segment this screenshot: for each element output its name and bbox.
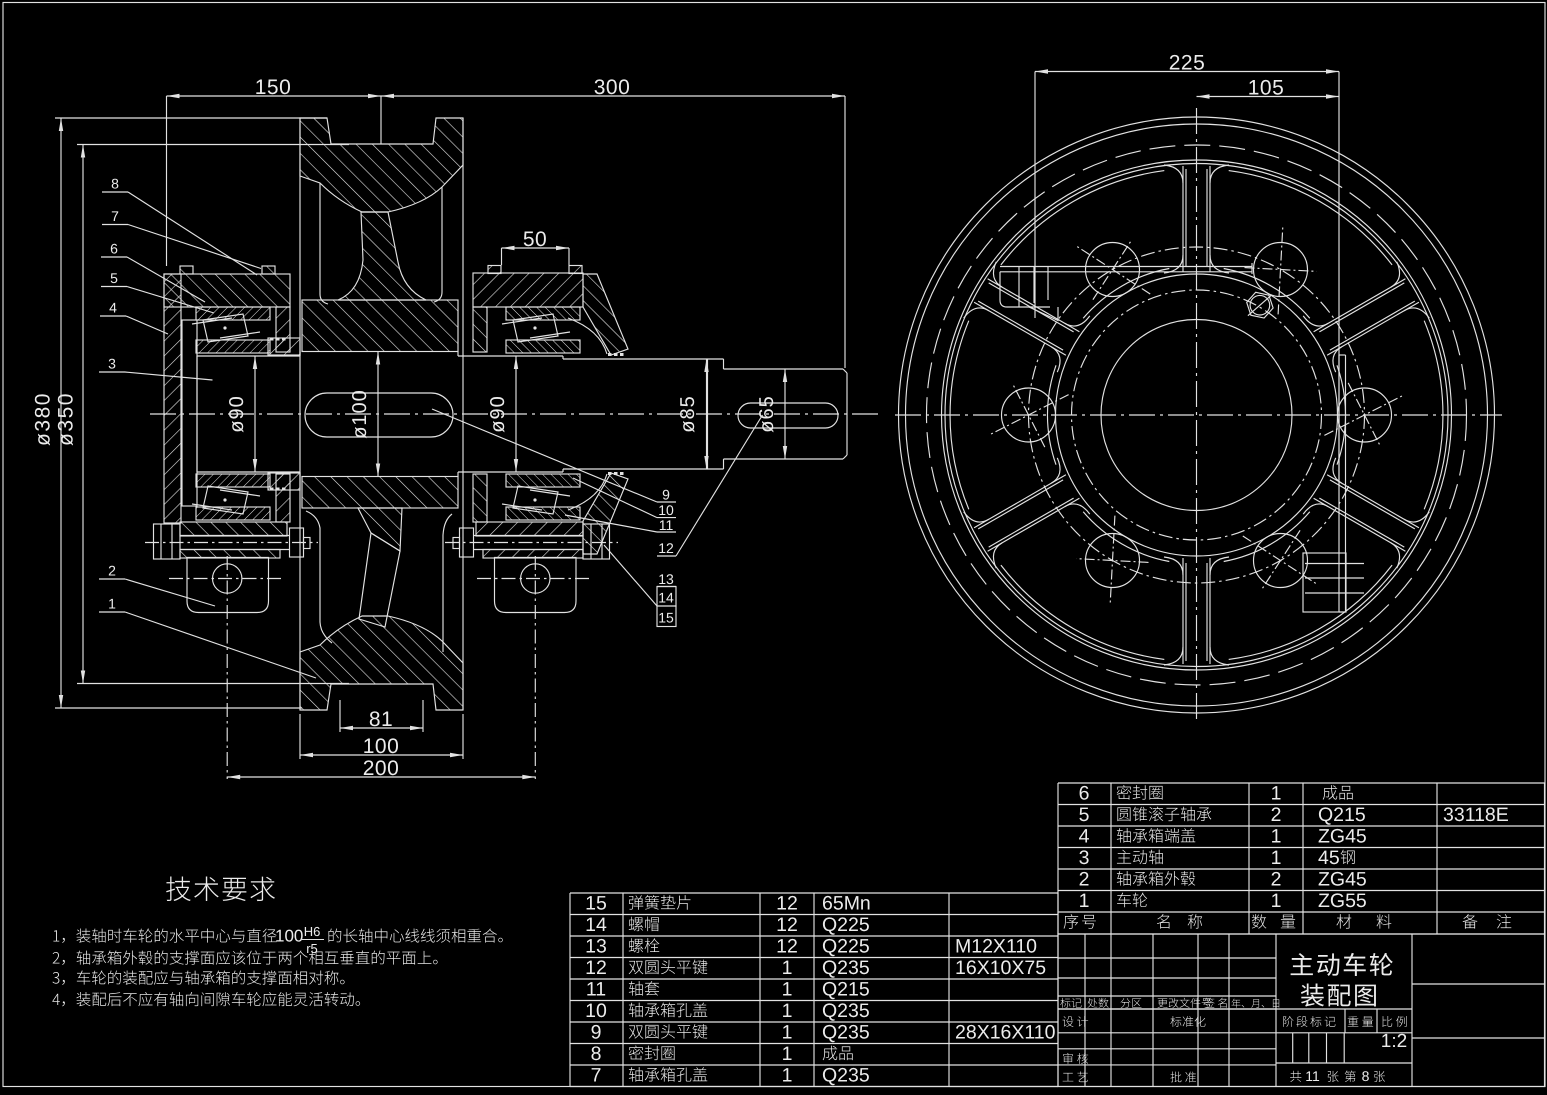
svg-text:50: 50 bbox=[523, 228, 547, 251]
svg-text:1: 1 bbox=[782, 1022, 793, 1044]
svg-text:14: 14 bbox=[658, 590, 674, 606]
svg-text:12: 12 bbox=[776, 936, 798, 958]
svg-text:ø100: ø100 bbox=[349, 389, 371, 439]
svg-text:1: 1 bbox=[1271, 890, 1282, 912]
svg-text:1: 1 bbox=[1271, 826, 1282, 848]
svg-text:1: 1 bbox=[782, 979, 793, 1001]
svg-text:8: 8 bbox=[591, 1043, 602, 1065]
svg-text:12: 12 bbox=[658, 540, 674, 556]
svg-text:12: 12 bbox=[776, 914, 798, 936]
svg-text:100: 100 bbox=[363, 735, 400, 758]
svg-text:13: 13 bbox=[585, 936, 607, 958]
svg-text:9: 9 bbox=[662, 487, 670, 503]
svg-text:3: 3 bbox=[1079, 847, 1090, 869]
svg-text:Q235: Q235 bbox=[822, 1065, 870, 1087]
svg-text:105: 105 bbox=[1248, 77, 1285, 100]
svg-text:ZG45: ZG45 bbox=[1318, 826, 1367, 848]
svg-text:300: 300 bbox=[594, 76, 631, 99]
svg-text:1: 1 bbox=[782, 1000, 793, 1022]
svg-text:6: 6 bbox=[1079, 783, 1090, 805]
svg-text:14: 14 bbox=[585, 914, 607, 936]
svg-text:4: 4 bbox=[1079, 826, 1090, 848]
svg-text:150: 150 bbox=[255, 76, 292, 99]
svg-text:65Mn: 65Mn bbox=[822, 893, 871, 915]
svg-text:225: 225 bbox=[1169, 52, 1206, 75]
svg-text:7: 7 bbox=[591, 1065, 602, 1087]
svg-text:2: 2 bbox=[1271, 869, 1282, 891]
svg-text:15: 15 bbox=[585, 893, 607, 915]
svg-text:10: 10 bbox=[585, 1000, 607, 1022]
svg-text:2: 2 bbox=[1079, 869, 1090, 891]
svg-text:ø350: ø350 bbox=[55, 392, 78, 446]
svg-text:5: 5 bbox=[110, 270, 118, 286]
svg-text:28X16X110: 28X16X110 bbox=[955, 1022, 1056, 1044]
svg-text:1: 1 bbox=[1079, 890, 1090, 912]
svg-text:200: 200 bbox=[363, 757, 400, 780]
svg-text:Q225: Q225 bbox=[822, 936, 870, 958]
svg-text:Q215: Q215 bbox=[822, 979, 870, 1001]
svg-text:ø85: ø85 bbox=[677, 395, 699, 432]
svg-text:11: 11 bbox=[659, 517, 674, 533]
svg-text:6: 6 bbox=[110, 241, 118, 257]
svg-text:45: 45 bbox=[1318, 847, 1340, 869]
svg-text:11: 11 bbox=[1305, 1068, 1320, 1084]
svg-text:M12X110: M12X110 bbox=[955, 936, 1037, 958]
svg-text:ø90: ø90 bbox=[487, 395, 509, 432]
svg-text:15: 15 bbox=[658, 610, 674, 626]
svg-text:ZG55: ZG55 bbox=[1318, 890, 1367, 912]
svg-text:2: 2 bbox=[1271, 804, 1282, 826]
svg-text:13: 13 bbox=[658, 571, 674, 587]
svg-text:Q215: Q215 bbox=[1318, 804, 1366, 826]
svg-text:1: 1 bbox=[1271, 847, 1282, 869]
svg-text:12: 12 bbox=[585, 957, 607, 979]
svg-text:1: 1 bbox=[782, 1043, 793, 1065]
svg-text:8: 8 bbox=[1362, 1068, 1370, 1084]
svg-text:12: 12 bbox=[776, 893, 798, 915]
svg-text:Q235: Q235 bbox=[822, 957, 870, 979]
svg-text:5: 5 bbox=[1079, 804, 1090, 826]
svg-text:1: 1 bbox=[108, 596, 116, 612]
svg-text:11: 11 bbox=[586, 979, 606, 1001]
svg-text:ø380: ø380 bbox=[32, 392, 55, 446]
svg-text:3: 3 bbox=[108, 356, 116, 372]
svg-text:1: 1 bbox=[782, 1065, 793, 1087]
svg-text:81: 81 bbox=[369, 708, 393, 731]
svg-text:16X10X75: 16X10X75 bbox=[955, 957, 1046, 979]
svg-text:10: 10 bbox=[658, 502, 674, 518]
svg-text:Q225: Q225 bbox=[822, 914, 870, 936]
svg-text:2: 2 bbox=[108, 563, 116, 579]
svg-text:ø90: ø90 bbox=[226, 395, 248, 432]
svg-text:4: 4 bbox=[109, 300, 117, 316]
svg-text:1:2: 1:2 bbox=[1381, 1031, 1407, 1052]
svg-text:Q235: Q235 bbox=[822, 1000, 870, 1022]
svg-text:8: 8 bbox=[111, 176, 119, 192]
svg-text:33118E: 33118E bbox=[1443, 804, 1509, 826]
svg-text:ø65: ø65 bbox=[756, 395, 778, 432]
svg-text:1: 1 bbox=[782, 957, 793, 979]
svg-text:100: 100 bbox=[275, 927, 303, 946]
svg-text:ZG45: ZG45 bbox=[1318, 869, 1367, 891]
svg-text:Q235: Q235 bbox=[822, 1022, 870, 1044]
svg-text:1: 1 bbox=[1271, 783, 1282, 805]
svg-text:9: 9 bbox=[591, 1022, 602, 1044]
svg-text:H6: H6 bbox=[304, 924, 321, 939]
svg-text:7: 7 bbox=[111, 208, 119, 224]
